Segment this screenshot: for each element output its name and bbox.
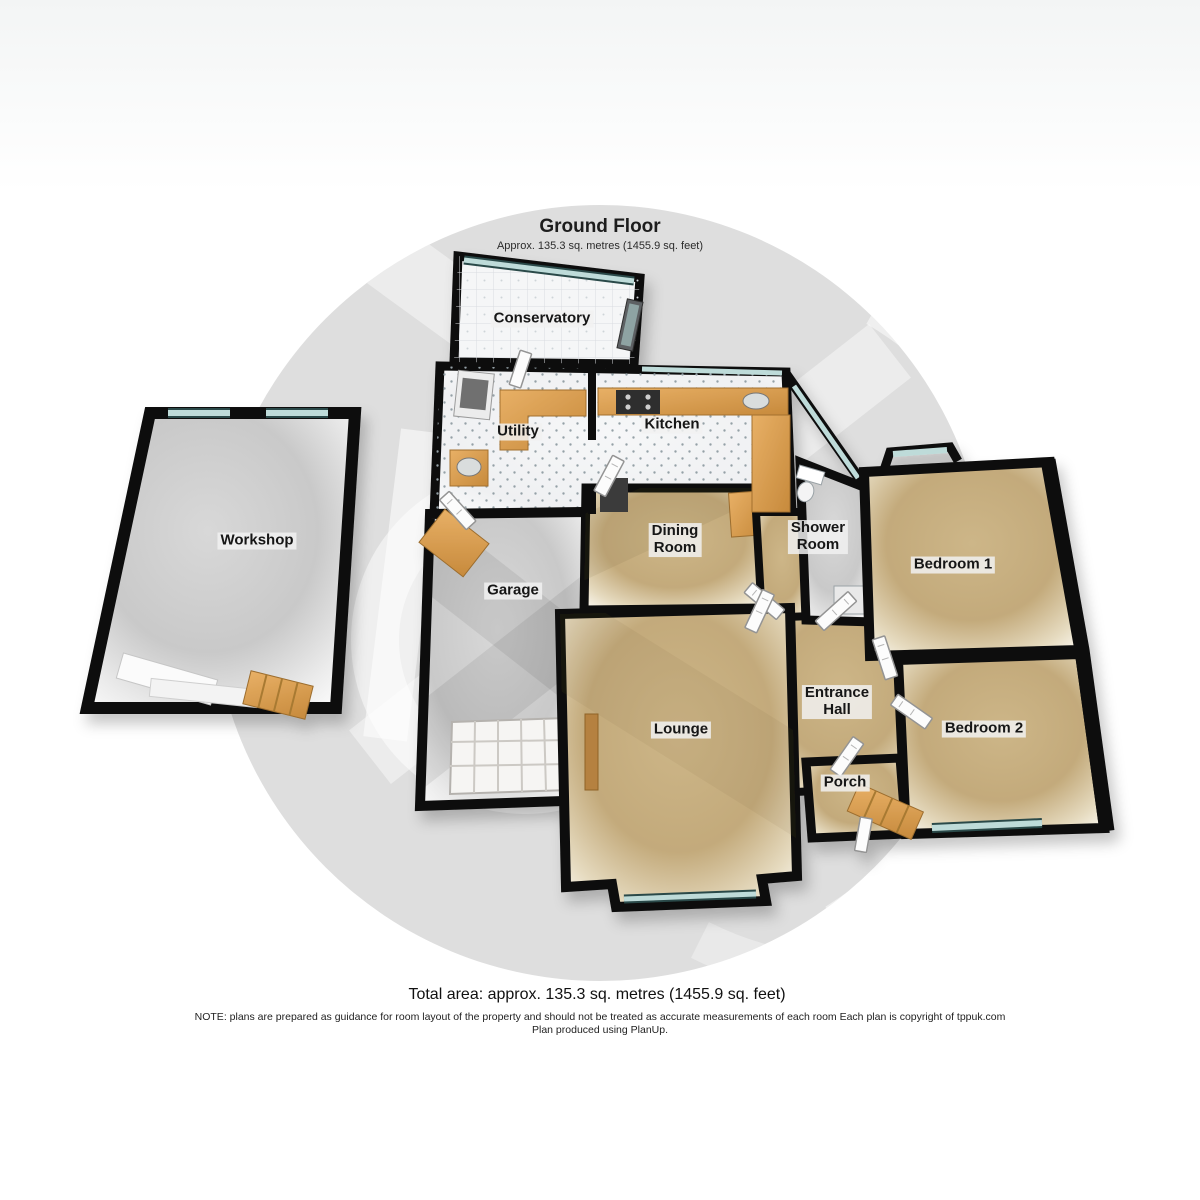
- room-label-porch: Porch: [821, 775, 870, 792]
- utility-sink: [457, 458, 481, 476]
- room-label-utility: Utility: [494, 424, 542, 441]
- room-label-shower-room: Shower Room: [788, 520, 848, 554]
- room-label-workshop: Workshop: [217, 533, 296, 550]
- floorplan-page: Ground Floor Approx. 135.3 sq. metres (1…: [0, 0, 1200, 1200]
- bedroom1-bay-window-glass: [893, 450, 947, 454]
- room-label-garage: Garage: [484, 583, 542, 600]
- garage-door: [450, 718, 570, 794]
- room-label-kitchen: Kitchen: [641, 417, 702, 434]
- room-label-bedroom2: Bedroom 2: [942, 721, 1026, 738]
- room-label-conservatory: Conservatory: [491, 311, 594, 328]
- room-label-dining-room: Dining Room: [649, 523, 702, 557]
- kitchen-hob: [616, 390, 660, 414]
- shower-room-line1: Shower: [791, 520, 845, 537]
- room-label-entrance-hall: Entrance Hall: [802, 685, 872, 719]
- entrance-hall-line2: Hall: [805, 702, 869, 719]
- room-label-lounge: Lounge: [651, 722, 711, 739]
- total-area-text: Total area: approx. 135.3 sq. metres (14…: [408, 986, 785, 1004]
- dining-room-line1: Dining: [652, 523, 699, 540]
- page-title: Ground Floor: [539, 216, 660, 238]
- room-label-bedroom1: Bedroom 1: [911, 557, 995, 574]
- dining-room-line2: Room: [652, 540, 699, 557]
- bedroom2-floor: [898, 654, 1104, 834]
- washing-machine: [454, 370, 495, 420]
- lounge-wood-panel: [585, 714, 598, 790]
- disclaimer-note: NOTE: plans are prepared as guidance for…: [195, 1011, 1006, 1023]
- page-subtitle: Approx. 135.3 sq. metres (1455.9 sq. fee…: [497, 240, 703, 252]
- kitchen-counter-side: [752, 415, 790, 512]
- kitchen-sink: [743, 393, 769, 409]
- entrance-hall-line1: Entrance: [805, 685, 869, 702]
- workshop-building: [87, 413, 355, 719]
- shower-room-line2: Room: [791, 537, 845, 554]
- produced-by-note: Plan produced using PlanUp.: [532, 1024, 668, 1036]
